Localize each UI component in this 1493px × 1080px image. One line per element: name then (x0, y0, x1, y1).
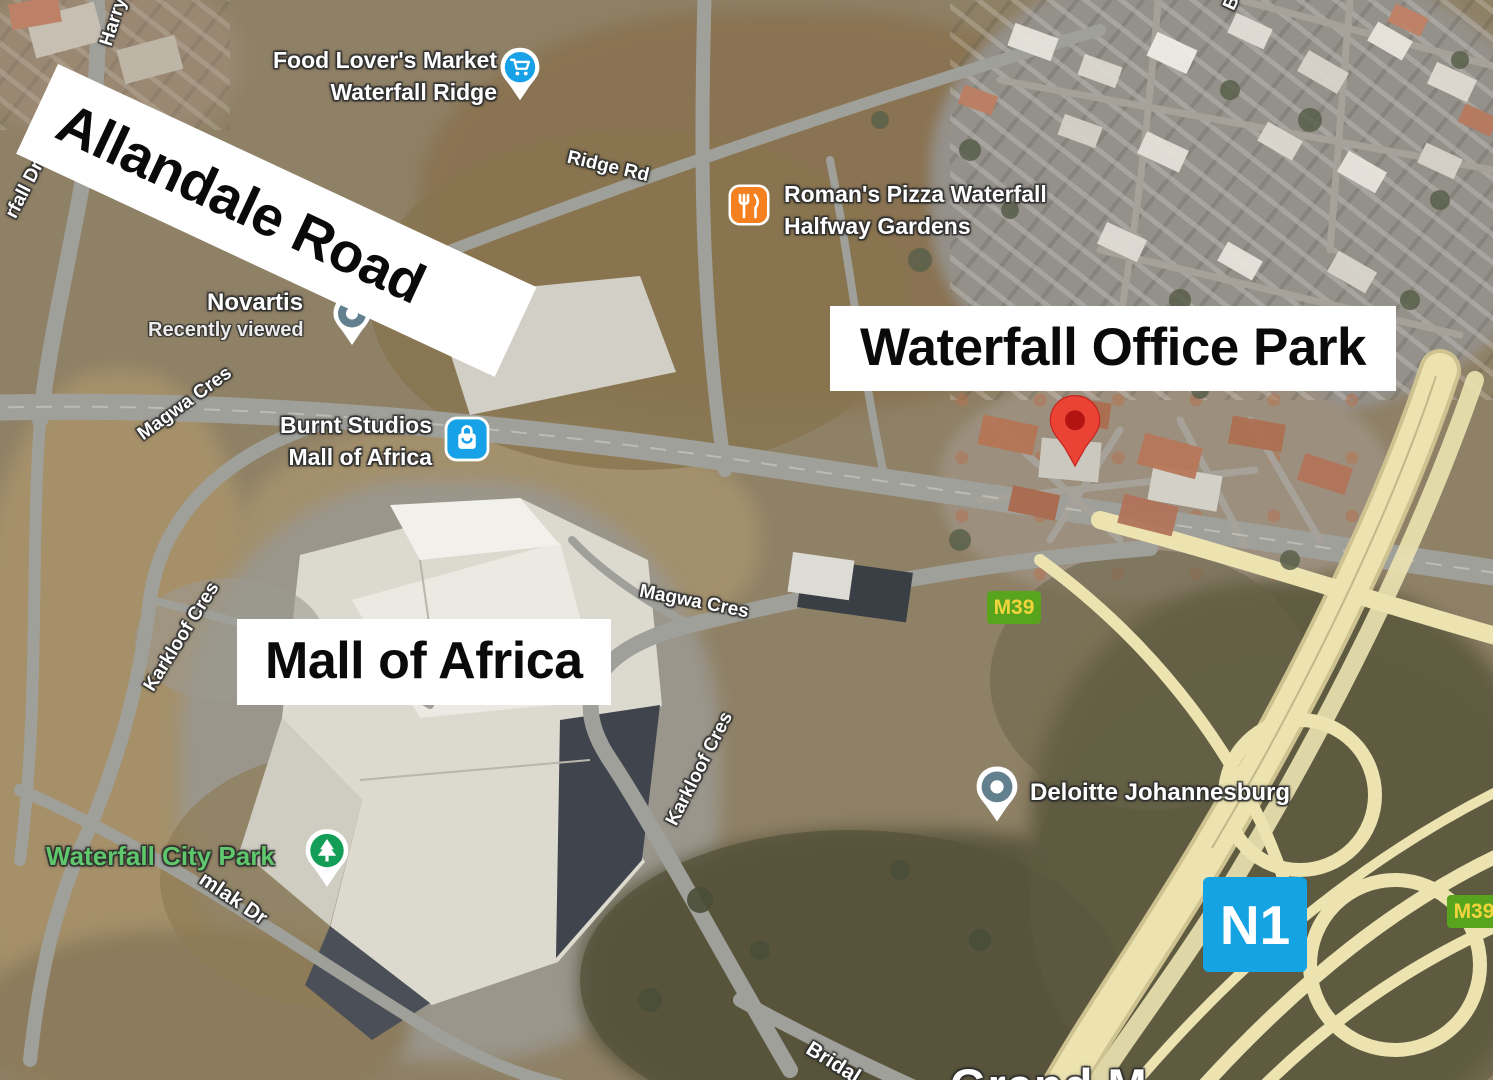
poi-label: Halfway Gardens (784, 210, 1047, 242)
destination-pin-icon[interactable] (1048, 392, 1102, 472)
route-badge-m39-right: M39 (1447, 895, 1493, 928)
shopping-bag-chip-icon[interactable] (443, 415, 491, 463)
poi-burnt-studios[interactable]: Burnt Studios Mall of Africa (238, 409, 432, 473)
satellite-map[interactable]: Harry rfall Dr Ridge Rd Magwa Cres Magwa… (0, 0, 1493, 1080)
route-badge-label: M39 (994, 596, 1035, 620)
poi-label: Burnt Studios (238, 409, 432, 441)
park-tree-pin-icon[interactable] (304, 828, 350, 888)
route-badge-label: N1 (1220, 893, 1290, 957)
poi-romans-pizza[interactable]: Roman's Pizza Waterfall Halfway Gardens (784, 178, 1047, 242)
poi-novartis[interactable]: Novartis (207, 289, 303, 317)
deloitte-pin-icon[interactable] (975, 765, 1019, 823)
poi-label: Mall of Africa (238, 441, 432, 473)
area-label-grand-partial: Grand M (950, 1058, 1148, 1080)
route-badge-n1: N1 (1203, 877, 1307, 972)
poi-label: Waterfall Ridge (215, 76, 497, 108)
restaurant-chip-icon[interactable] (727, 183, 771, 227)
poi-label: Novartis (207, 289, 303, 316)
annotation-mall-of-africa: Mall of Africa (237, 619, 611, 705)
poi-deloitte[interactable]: Deloitte Johannesburg (1030, 779, 1290, 807)
poi-label: Roman's Pizza Waterfall (784, 178, 1047, 210)
route-badge-m39: M39 (987, 591, 1041, 624)
shopping-cart-pin-icon[interactable] (499, 46, 541, 102)
poi-label: Food Lover's Market (215, 44, 497, 76)
annotation-waterfall-office-park: Waterfall Office Park (830, 306, 1396, 391)
poi-novartis-status: Recently viewed (148, 319, 304, 342)
poi-label: Deloitte Johannesburg (1030, 779, 1290, 806)
poi-label: Waterfall City Park (46, 841, 275, 871)
poi-food-lovers-market[interactable]: Food Lover's Market Waterfall Ridge (215, 44, 497, 108)
poi-waterfall-city-park[interactable]: Waterfall City Park (46, 841, 275, 872)
recently-viewed-label: Recently viewed (148, 319, 304, 341)
route-badge-label: M39 (1454, 900, 1493, 924)
